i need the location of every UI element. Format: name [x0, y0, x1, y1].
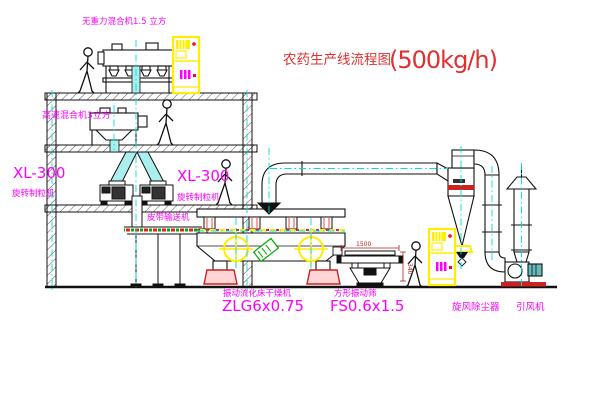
control-cabinet-lower	[429, 229, 455, 285]
label-draft-fan: 引风机	[516, 301, 545, 313]
induced-draft-fan-machine	[501, 252, 546, 287]
worker-figure-second-floor	[157, 100, 173, 145]
dimension-sieve-height: 340	[406, 263, 413, 275]
label-granulator-center-model: XL-300	[177, 167, 229, 185]
granulator-center-machine	[140, 181, 173, 205]
label-granulator-center-name: 旋转制粒机	[177, 192, 220, 203]
mixer-discharge-pipe	[110, 140, 119, 152]
worker-figure-top-floor	[78, 48, 94, 93]
label-gravity-mixer: 无重力混合机1.5 立方	[82, 16, 166, 27]
floor-slab-top	[45, 93, 257, 100]
label-dryer-model: ZLG6x0.75	[222, 297, 304, 315]
floor-slab-mid	[45, 145, 257, 152]
label-belt-conveyor: 皮带输送机	[147, 212, 190, 223]
y-splitter-duct	[109, 152, 165, 184]
label-granulator-left-name: 旋转制粒机	[12, 188, 55, 199]
cad-drawing-canvas: 农药生产线流程图 (500kg/h) 无重力混合机1.5 立方 高速混合机3立方…	[0, 0, 600, 403]
diagram-title-capacity: (500kg/h)	[389, 46, 497, 74]
label-high-speed-mixer: 高速混合机3立方	[42, 109, 111, 121]
dimension-sieve-length: 1500	[356, 241, 371, 248]
label-granulator-left-model: XL-300	[13, 164, 65, 182]
control-cabinet-upper	[173, 37, 199, 93]
process-flow-diagram: 农药生产线流程图 (500kg/h) 无重力混合机1.5 立方 高速混合机3立方…	[0, 0, 600, 403]
vibrating-sieve-machine	[337, 251, 403, 286]
granulator-left-machine	[100, 181, 133, 205]
feed-drop-pipe	[132, 196, 142, 227]
label-sieve-model: FS0.6x1.5	[330, 297, 404, 315]
label-cyclone: 旋风除尘器	[452, 301, 500, 313]
diagram-title-zh: 农药生产线流程图	[283, 52, 391, 68]
